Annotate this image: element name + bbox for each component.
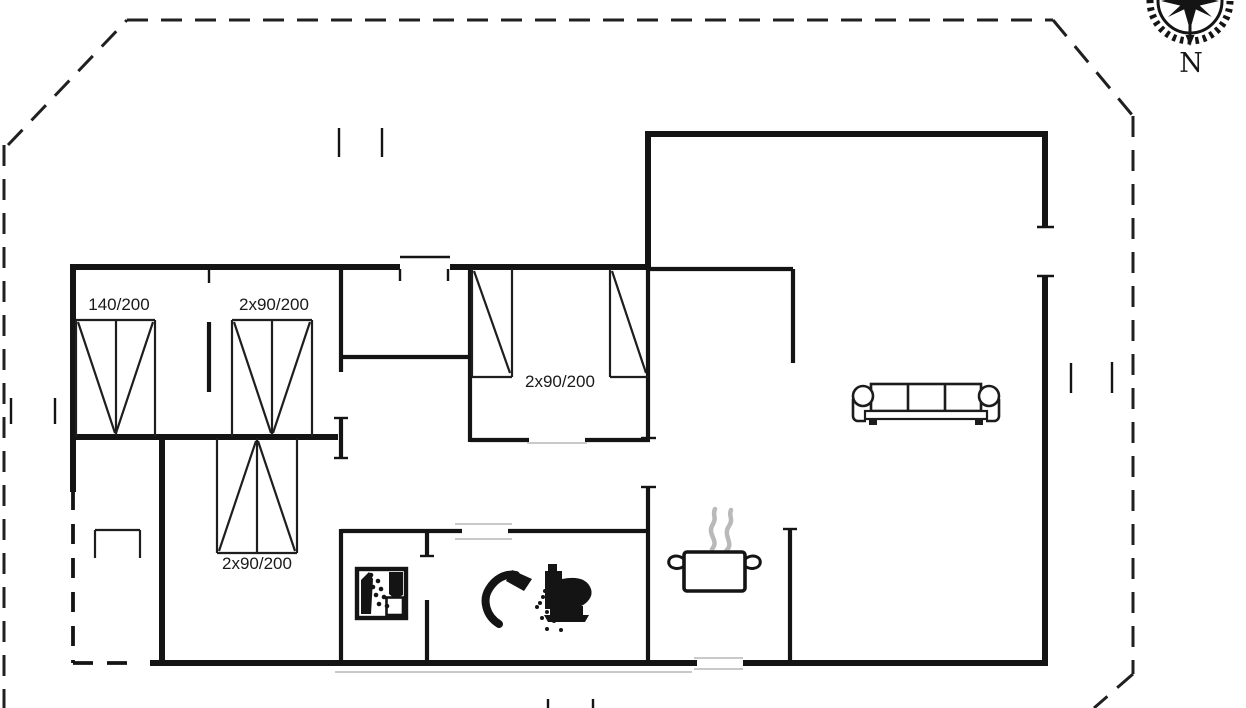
compass-rose-icon (1150, 0, 1230, 46)
bed-size-label-2x90-mid: 2x90/200 (512, 373, 608, 392)
bed-size-label-140-200: 140/200 (79, 296, 159, 315)
toilet-icon (544, 564, 592, 622)
washing-machine-icon (357, 569, 406, 618)
floor-plan-canvas (0, 0, 1246, 708)
floor-plan-page: 140/200 2x90/200 2x90/200 2x90/200 N (0, 0, 1246, 708)
bed-size-label-2x90-top: 2x90/200 (226, 296, 322, 315)
north-label: N (1172, 50, 1210, 77)
sofa-symbol (853, 384, 999, 425)
bed-size-label-2x90-bottom: 2x90/200 (208, 555, 306, 574)
cooking-pot-icon (669, 509, 761, 591)
